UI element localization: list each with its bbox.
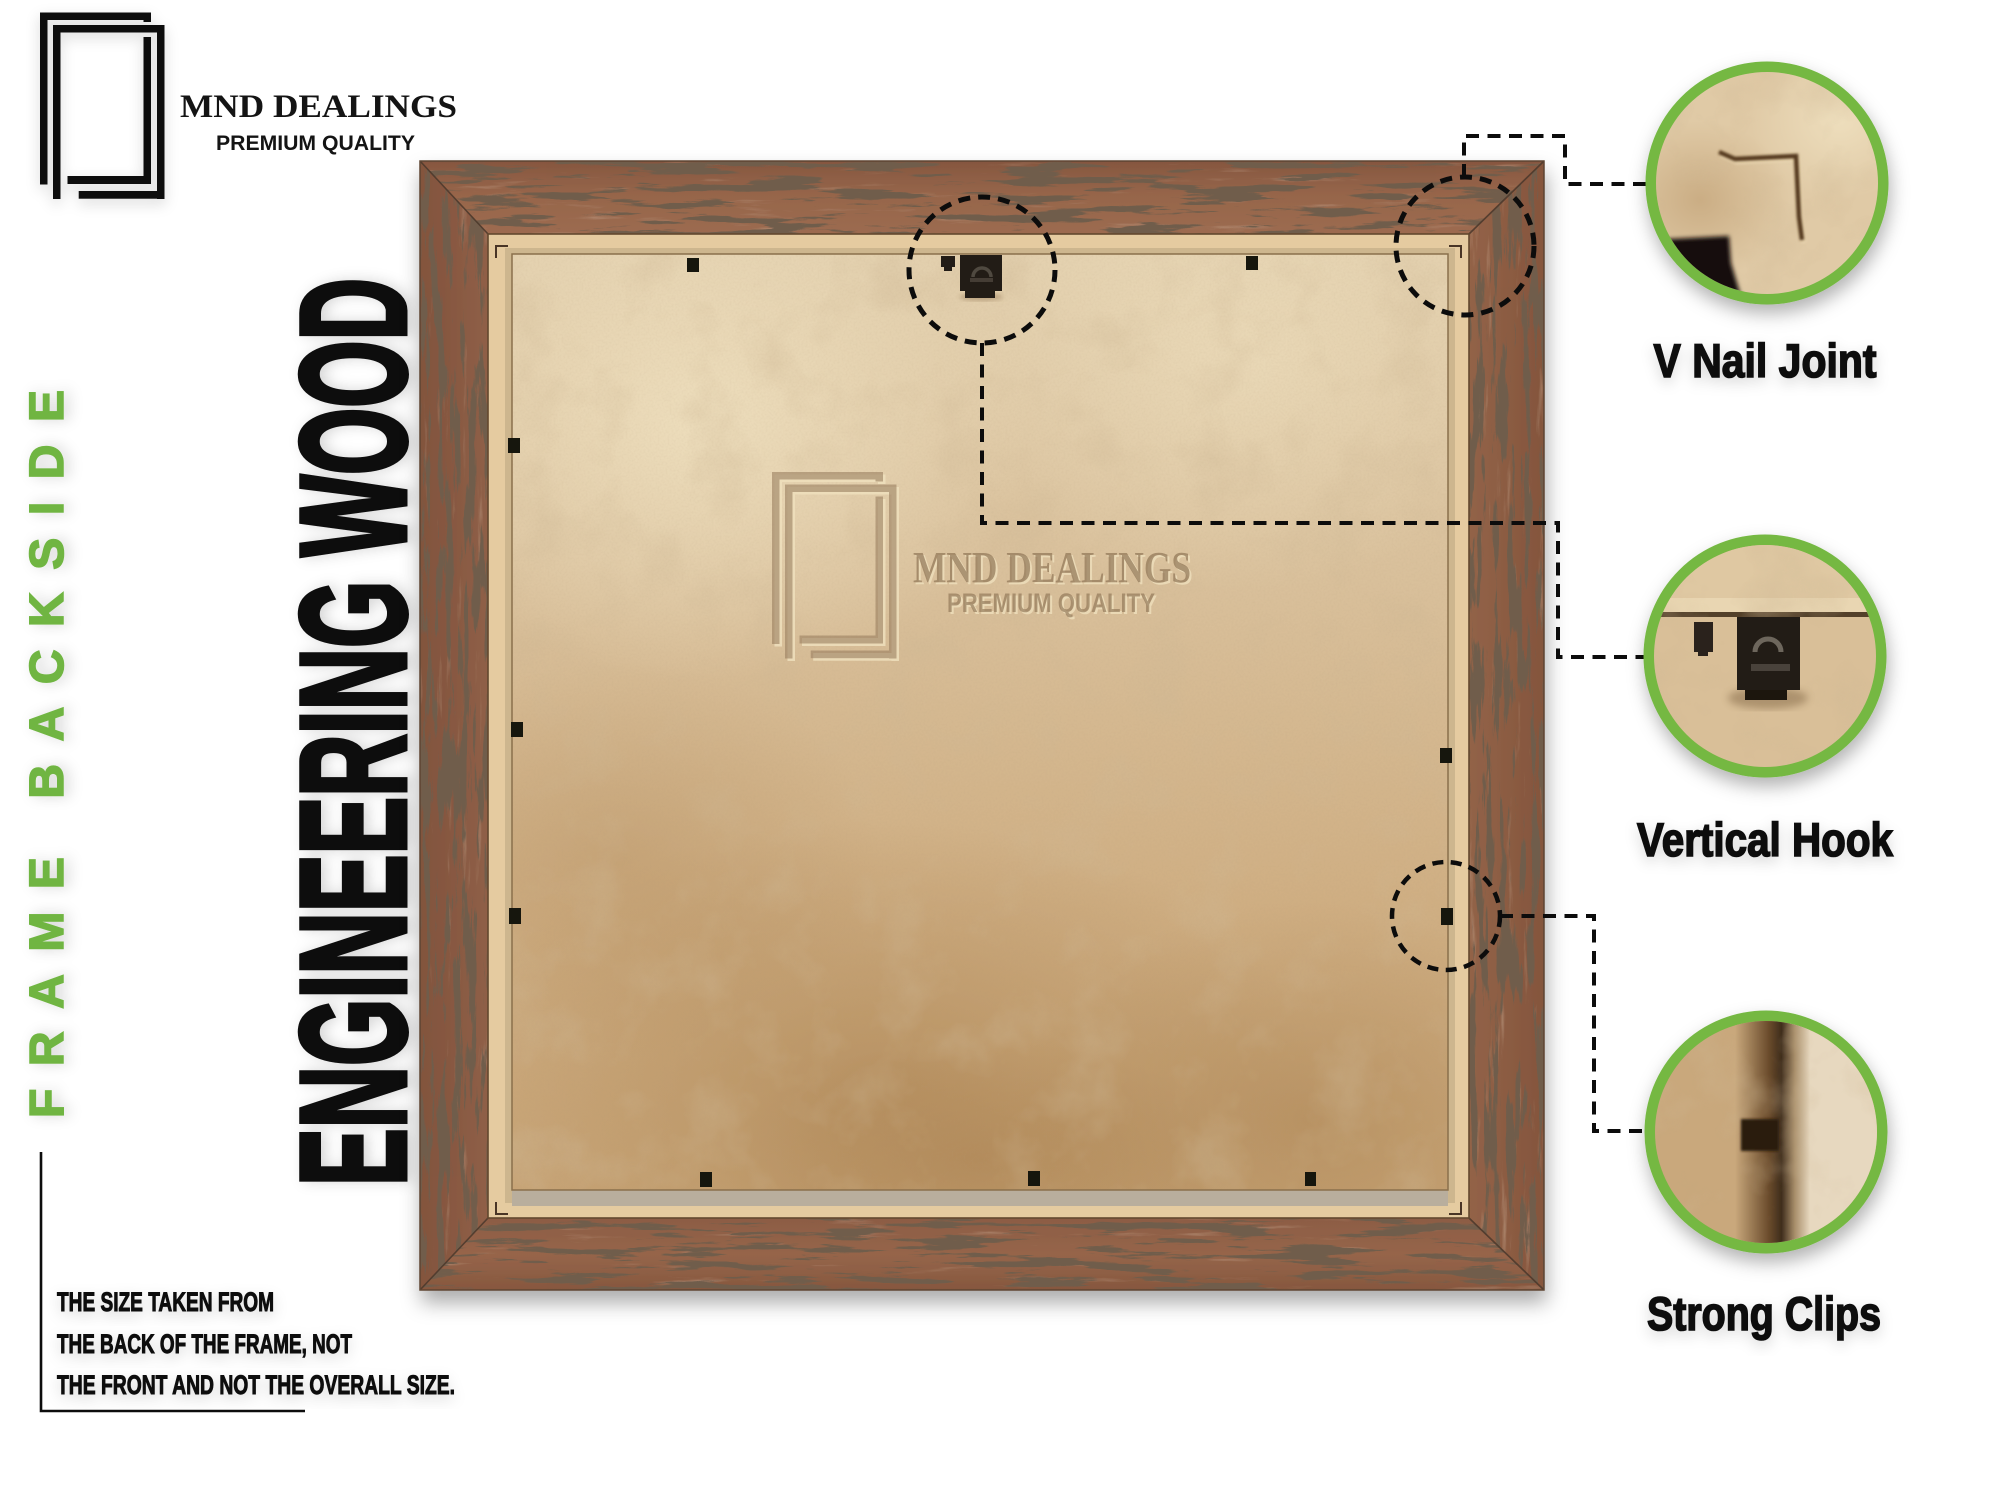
svg-text:PREMIUM QUALITY: PREMIUM QUALITY [216, 131, 415, 155]
svg-text:ENGINEERING WOOD: ENGINEERING WOOD [269, 278, 437, 1186]
svg-text:Vertical Hook: Vertical Hook [1637, 813, 1894, 866]
svg-text:MND DEALINGS: MND DEALINGS [913, 543, 1191, 592]
svg-text:Strong Clips: Strong Clips [1647, 1287, 1881, 1340]
svg-text:THE SIZE TAKEN FROM: THE SIZE TAKEN FROM [57, 1287, 274, 1317]
svg-text:THE FRONT AND NOT THE OVERALL: THE FRONT AND NOT THE OVERALL SIZE. [57, 1370, 455, 1400]
svg-text:PREMIUM QUALITY: PREMIUM QUALITY [947, 588, 1155, 618]
svg-text:THE BACK OF THE FRAME, NOT: THE BACK OF THE FRAME, NOT [57, 1329, 352, 1359]
svg-text:V Nail Joint: V Nail Joint [1654, 334, 1877, 387]
svg-text:MND DEALINGS: MND DEALINGS [180, 89, 457, 125]
